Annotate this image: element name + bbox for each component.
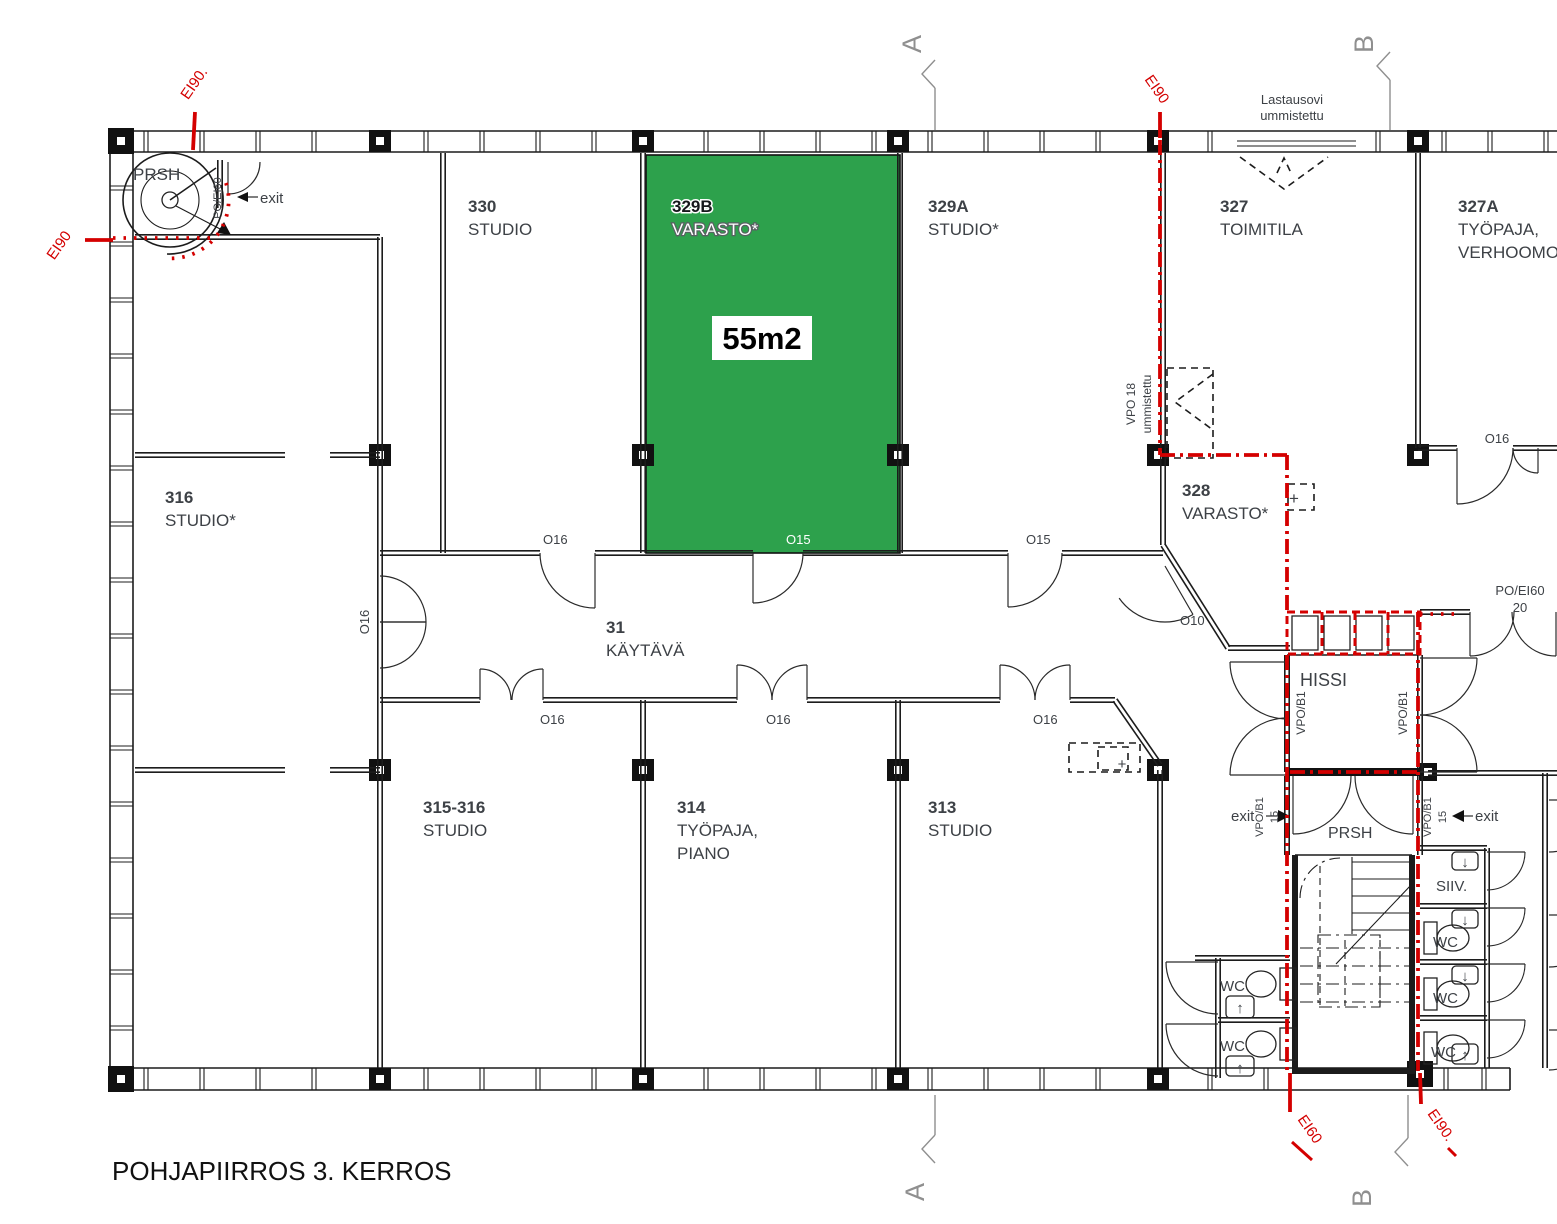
room-327-number: 327: [1220, 197, 1248, 216]
room-316-number: 316: [165, 488, 193, 507]
fire-ei90-bottom-right: EI90.: [1424, 1106, 1458, 1144]
symbol-plus-lobby: +: [1118, 756, 1127, 773]
sink-arrow-wc-left-2: ↑: [1236, 1060, 1244, 1077]
room-327a-type-line2: VERHOOMO: [1458, 243, 1557, 262]
floor-plan-canvas: POHJAPIIRROS 3. KERROS330STUDIO329BVARAS…: [0, 0, 1557, 1224]
label-prsh-lobby: PRSH: [1328, 825, 1372, 842]
section-marker-a-bottom: A: [900, 1183, 930, 1201]
note-vpo-b1-hissi-right: VPO/B1: [1396, 691, 1410, 735]
note-vpo-b1-15-right-line1: VPO/B1: [1422, 797, 1434, 837]
room-313-type: STUDIO: [928, 821, 992, 840]
room-329a-number: 329A: [928, 197, 969, 216]
label-wc-right-1: WC: [1433, 934, 1458, 951]
room-316-type: STUDIO*: [165, 511, 236, 530]
note-vpo18-line1: VPO 18: [1124, 383, 1138, 425]
door-o10: O10: [1180, 613, 1205, 628]
section-marker-b-bottom: B: [1347, 1189, 1377, 1207]
room-327a-type-line1: TYÖPAJA,: [1458, 220, 1539, 239]
fire-ei90-top-left: EI90.: [177, 64, 211, 102]
door-o16-314: O16: [766, 712, 791, 727]
fire-ei90-top-middle: EI90: [1141, 72, 1173, 107]
label-wc-right-2: WC: [1433, 990, 1458, 1007]
room-328-type: VARASTO*: [1182, 504, 1269, 523]
room-314-number: 314: [677, 798, 706, 817]
room-330-number: 330: [468, 197, 496, 216]
label-wc-left-1: WC: [1220, 978, 1245, 995]
room-315-316-number: 315-316: [423, 798, 485, 817]
note-vpo-b1-15-right-line2: 15: [1437, 811, 1449, 823]
room-329a-type: STUDIO*: [928, 220, 999, 239]
symbol-plus-328: +: [1289, 489, 1299, 508]
door-o15-329a: O15: [1026, 532, 1051, 547]
room-313-number: 313: [928, 798, 956, 817]
sink-arrow-wc-right-2: ↓: [1461, 968, 1469, 985]
label-prsh-stair: PRSH: [133, 165, 180, 184]
door-o16-corridor-west: O16: [357, 610, 372, 635]
exit-label-right: exit: [1475, 808, 1499, 825]
fire-ei90-left: EI90: [44, 228, 76, 263]
fire-ei60-bottom-left: EI60: [1294, 1112, 1326, 1147]
room-329b-area: 55m2: [722, 321, 801, 356]
label-wc-right-3: WC: [1431, 1044, 1456, 1061]
exit-label-lobby: exit: [1231, 808, 1255, 825]
room-330-type: STUDIO: [468, 220, 532, 239]
sink-arrow-wc-right-3: ↑: [1461, 1047, 1469, 1064]
door-o16-315-316: O16: [540, 712, 565, 727]
room-314-type-line1: TYÖPAJA,: [677, 821, 758, 840]
room-327a-number: 327A: [1458, 197, 1499, 216]
door-o15-329b: O15: [786, 532, 811, 547]
room-314-type-line2: PIANO: [677, 844, 730, 863]
exit-label-stair: exit: [260, 190, 284, 207]
door-o16-313: O16: [1033, 712, 1058, 727]
room-315-316-type: STUDIO: [423, 821, 487, 840]
label-siiv: SIIV.: [1436, 878, 1467, 895]
note-vpo-b1-15-left-line2: 15: [1269, 811, 1281, 823]
note-vpo18-line2: ummistettu: [1140, 375, 1154, 434]
plan-title: POHJAPIIRROS 3. KERROS: [112, 1156, 452, 1186]
note-vpo-b1-hissi-left: VPO/B1: [1294, 691, 1308, 735]
room-31-type: KÄYTÄVÄ: [606, 641, 685, 660]
sink-arrow-siiv: ↓: [1461, 854, 1469, 871]
note-po-ei60-line1: PO/EI60: [1495, 583, 1544, 598]
note-po-ei60-line2: 20: [1513, 600, 1527, 615]
label-hissi: HISSI: [1300, 670, 1347, 690]
room-31-number: 31: [606, 618, 625, 637]
note-lastausovi-line1: Lastausovi: [1261, 92, 1323, 107]
note-vpo-b1-15-left-line1: VPO/B1: [1254, 797, 1266, 837]
floor-plan-page: POHJAPIIRROS 3. KERROS330STUDIO329BVARAS…: [0, 0, 1557, 1224]
room-329b-type: VARASTO*: [672, 220, 759, 239]
note-po-ei60-stair: PO/EI60: [212, 177, 224, 219]
sink-arrow-wc-left-1: ↑: [1236, 1000, 1244, 1017]
door-o16-330: O16: [543, 532, 568, 547]
label-wc-left-2: WC: [1220, 1038, 1245, 1055]
section-marker-a-top: A: [897, 35, 927, 53]
room-327-type: TOIMITILA: [1220, 220, 1303, 239]
room-329b-number: 329B: [672, 197, 713, 216]
door-o16-327a: O16: [1485, 431, 1510, 446]
sink-arrow-wc-right-1: ↓: [1461, 912, 1469, 929]
section-marker-b-top: B: [1349, 35, 1379, 53]
room-328-number: 328: [1182, 481, 1210, 500]
note-lastausovi-line2: ummistettu: [1260, 108, 1324, 123]
